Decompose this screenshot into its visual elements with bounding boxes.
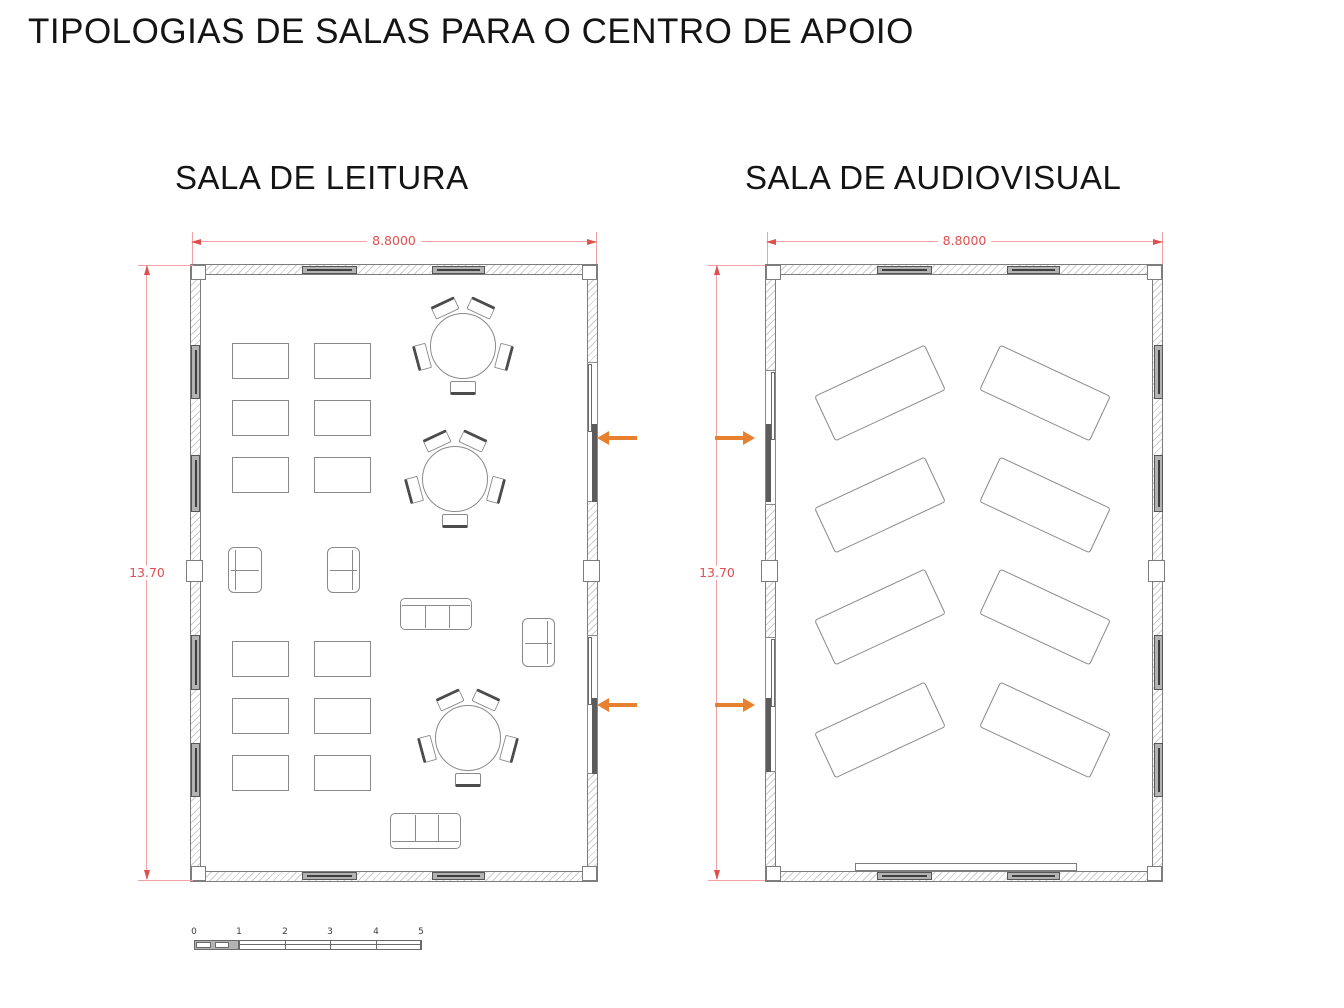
av-desk (814, 345, 946, 442)
column (582, 265, 597, 280)
dim-arrowhead (587, 239, 597, 245)
dimension-value: 13.70 (124, 565, 170, 580)
av-desk (814, 457, 946, 554)
armchair (522, 618, 555, 667)
column (582, 866, 597, 881)
reading-table (232, 698, 289, 734)
column (191, 265, 206, 280)
round-table (422, 446, 488, 512)
av-desk (814, 569, 946, 666)
reading-table (232, 343, 289, 379)
av-desk (979, 682, 1111, 779)
wall (765, 264, 1163, 275)
extension-line (192, 232, 193, 264)
scale-label: 0 (191, 927, 197, 937)
column (186, 560, 203, 582)
reading-table (314, 400, 371, 436)
reading-table (314, 641, 371, 677)
wall (190, 264, 598, 275)
entrance-arrow-icon (597, 431, 637, 445)
dimension-height-audiovisual: 13.70 (716, 266, 717, 879)
reading-table (232, 457, 289, 493)
column (766, 866, 781, 881)
av-desk (979, 457, 1111, 554)
sofa (400, 598, 472, 630)
reading-table (314, 457, 371, 493)
slide-canvas: TIPOLOGIAS DE SALAS PARA O CENTRO DE APO… (0, 0, 1344, 1008)
door-sash (588, 364, 592, 432)
window (1154, 635, 1163, 690)
door-sash (771, 639, 775, 707)
room-label-leitura: SALA DE LEITURA (175, 159, 469, 197)
av-desk (979, 569, 1111, 666)
window (191, 635, 200, 690)
door-sash (588, 637, 592, 705)
column (1147, 265, 1162, 280)
column (1148, 560, 1165, 582)
scale-tick (330, 940, 331, 950)
armchair (228, 547, 262, 593)
window (191, 743, 200, 797)
window (302, 266, 357, 274)
av-desk (979, 345, 1111, 442)
door-sash (771, 372, 775, 440)
scale-label: 5 (418, 927, 424, 937)
scale-label: 3 (327, 927, 333, 937)
reading-table (232, 400, 289, 436)
round-table (435, 705, 501, 771)
entrance-arrow-icon (715, 698, 755, 712)
window (1007, 266, 1060, 274)
window (1154, 455, 1163, 512)
scale-bar: 012345 (194, 926, 422, 952)
extension-line (708, 880, 765, 881)
reading-table (232, 755, 289, 791)
dim-arrowhead (191, 239, 201, 245)
page-title: TIPOLOGIAS DE SALAS PARA O CENTRO DE APO… (28, 12, 914, 52)
scale-bar-subdivision (196, 942, 211, 948)
reading-table (314, 343, 371, 379)
dimension-width-audiovisual: 8.8000 (767, 241, 1162, 242)
dim-arrowhead (766, 239, 776, 245)
chair (450, 381, 476, 395)
chair (485, 475, 505, 504)
reading-table (314, 755, 371, 791)
av-desk (814, 682, 946, 779)
dimension-width-leitura: 8.8000 (192, 241, 596, 242)
column (191, 866, 206, 881)
window (432, 872, 485, 880)
projection-screen (855, 863, 1077, 871)
dimension-value: 8.8000 (938, 234, 992, 249)
entrance-arrow-icon (715, 431, 755, 445)
door-sash (766, 698, 771, 772)
window (302, 872, 357, 880)
scale-tick (376, 940, 377, 950)
dimension-value: 8.8000 (367, 234, 421, 249)
reading-table (232, 641, 289, 677)
reading-table (314, 698, 371, 734)
window (191, 345, 200, 399)
dim-arrowhead (714, 870, 720, 880)
window (432, 266, 485, 274)
scale-tick (239, 940, 240, 950)
dim-arrowhead (1153, 239, 1163, 245)
wall (765, 871, 1163, 882)
scale-label: 2 (282, 927, 288, 937)
room-label-audiovisual: SALA DE AUDIOVISUAL (745, 159, 1121, 197)
chair (442, 514, 468, 528)
window (191, 455, 200, 512)
window (1154, 743, 1163, 797)
door-sash (766, 424, 771, 502)
column (761, 560, 778, 582)
chair (498, 734, 518, 763)
dim-arrowhead (714, 265, 720, 275)
scale-bar-subdivision (215, 942, 229, 948)
round-table (430, 313, 496, 379)
scale-label: 4 (373, 927, 379, 937)
scale-tick (421, 940, 422, 950)
dim-arrowhead (144, 265, 150, 275)
extension-line (1162, 232, 1163, 264)
extension-line (767, 232, 768, 264)
scale-tick (194, 940, 195, 950)
armchair (327, 547, 360, 593)
window (877, 266, 932, 274)
entrance-arrow-icon (597, 698, 637, 712)
sofa (390, 813, 461, 849)
extension-line (596, 232, 597, 264)
column (766, 265, 781, 280)
column (583, 560, 600, 582)
window (877, 872, 932, 880)
column (1147, 866, 1162, 881)
chair (493, 342, 513, 371)
extension-line (138, 880, 193, 881)
dim-arrowhead (144, 870, 150, 880)
scale-label: 1 (236, 927, 242, 937)
scale-tick (285, 940, 286, 950)
window (1154, 345, 1163, 399)
window (1007, 872, 1060, 880)
chair (455, 773, 481, 787)
dimension-value: 13.70 (694, 565, 740, 580)
wall (190, 871, 598, 882)
dimension-height-leitura: 13.70 (146, 266, 147, 879)
